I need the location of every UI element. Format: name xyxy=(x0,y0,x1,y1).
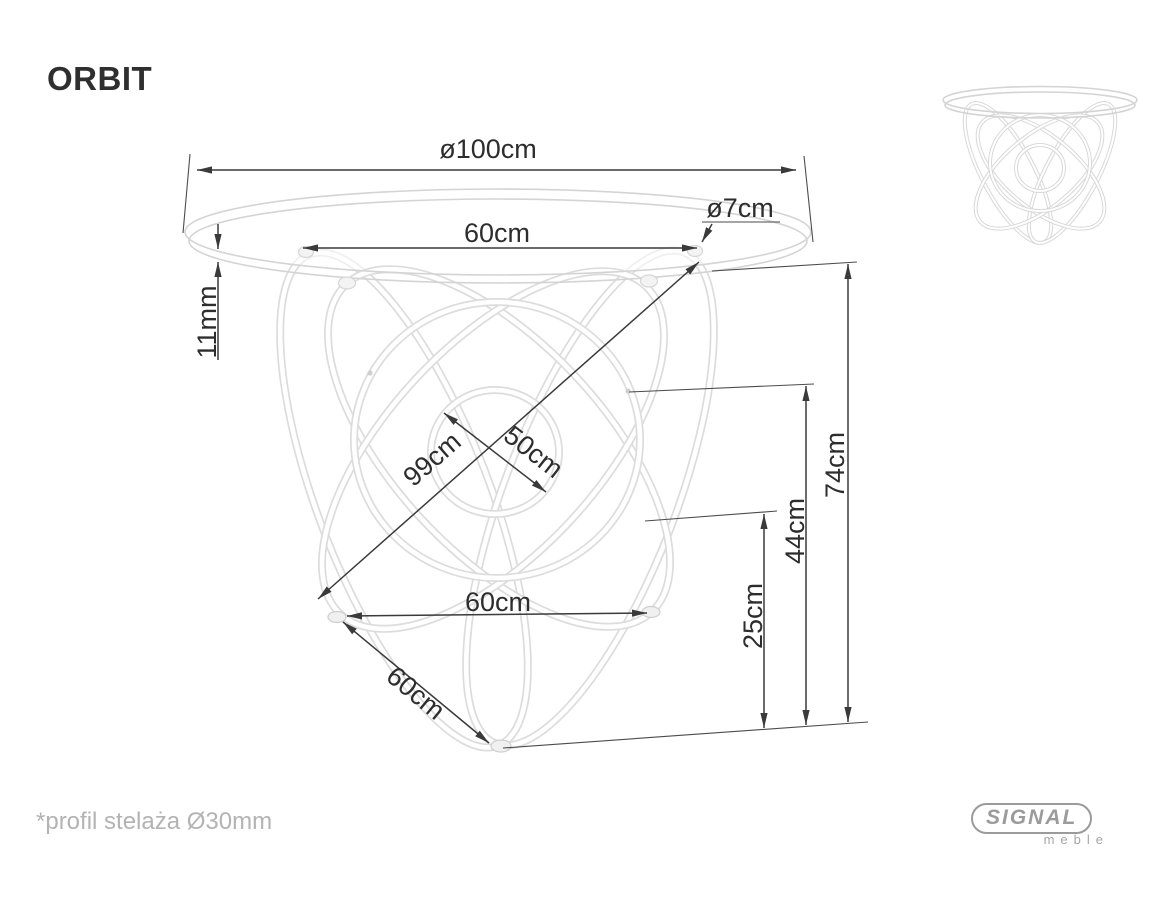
mount-disc-front-right xyxy=(641,275,658,287)
foot-front xyxy=(491,740,511,752)
logo-badge: SIGNAL xyxy=(971,803,1092,834)
technical-drawing: ø100cm 60cm ø7cm 11mm 99cm 50cm 60cm xyxy=(0,0,1176,900)
frame-profile-footnote: *profil stelaża Ø30mm xyxy=(36,808,272,836)
dim-label-total-height: 74cm xyxy=(820,432,850,498)
dimension-feet-spacing-60: 60cm xyxy=(347,587,647,617)
base-frame xyxy=(185,189,811,776)
thumbnail-base xyxy=(948,92,1131,254)
dim-label-feet-spacing: 60cm xyxy=(465,587,531,617)
dim-label-mid-height: 44cm xyxy=(780,498,810,564)
dimension-height-74: 74cm xyxy=(712,262,857,722)
foot-left xyxy=(328,612,346,623)
product-thumbnail xyxy=(943,87,1137,255)
floor-extension-line xyxy=(503,722,868,748)
logo-subtitle: meble xyxy=(971,832,1109,847)
junction-rivet-left xyxy=(367,370,372,375)
logo-brand-text: SIGNAL xyxy=(986,806,1077,829)
dim-label-tabletop-diameter: ø100cm xyxy=(439,134,537,164)
dim-label-glass-thickness: 11mm xyxy=(192,285,222,358)
dim-label-disc-diameter: ø7cm xyxy=(706,193,774,223)
drawing-sheet: ORBIT xyxy=(0,0,1176,900)
mount-disc-front-left xyxy=(339,277,356,289)
dim-label-lower-height: 25cm xyxy=(738,583,768,649)
foot-right xyxy=(642,607,660,618)
junction-rivet-right xyxy=(625,388,630,393)
dim-label-top-spacing: 60cm xyxy=(464,218,530,248)
mount-disc-rear-right xyxy=(688,246,703,257)
dim-label-foot-diagonal: 60cm xyxy=(381,660,451,725)
brand-logo: SIGNAL meble xyxy=(971,803,1121,847)
